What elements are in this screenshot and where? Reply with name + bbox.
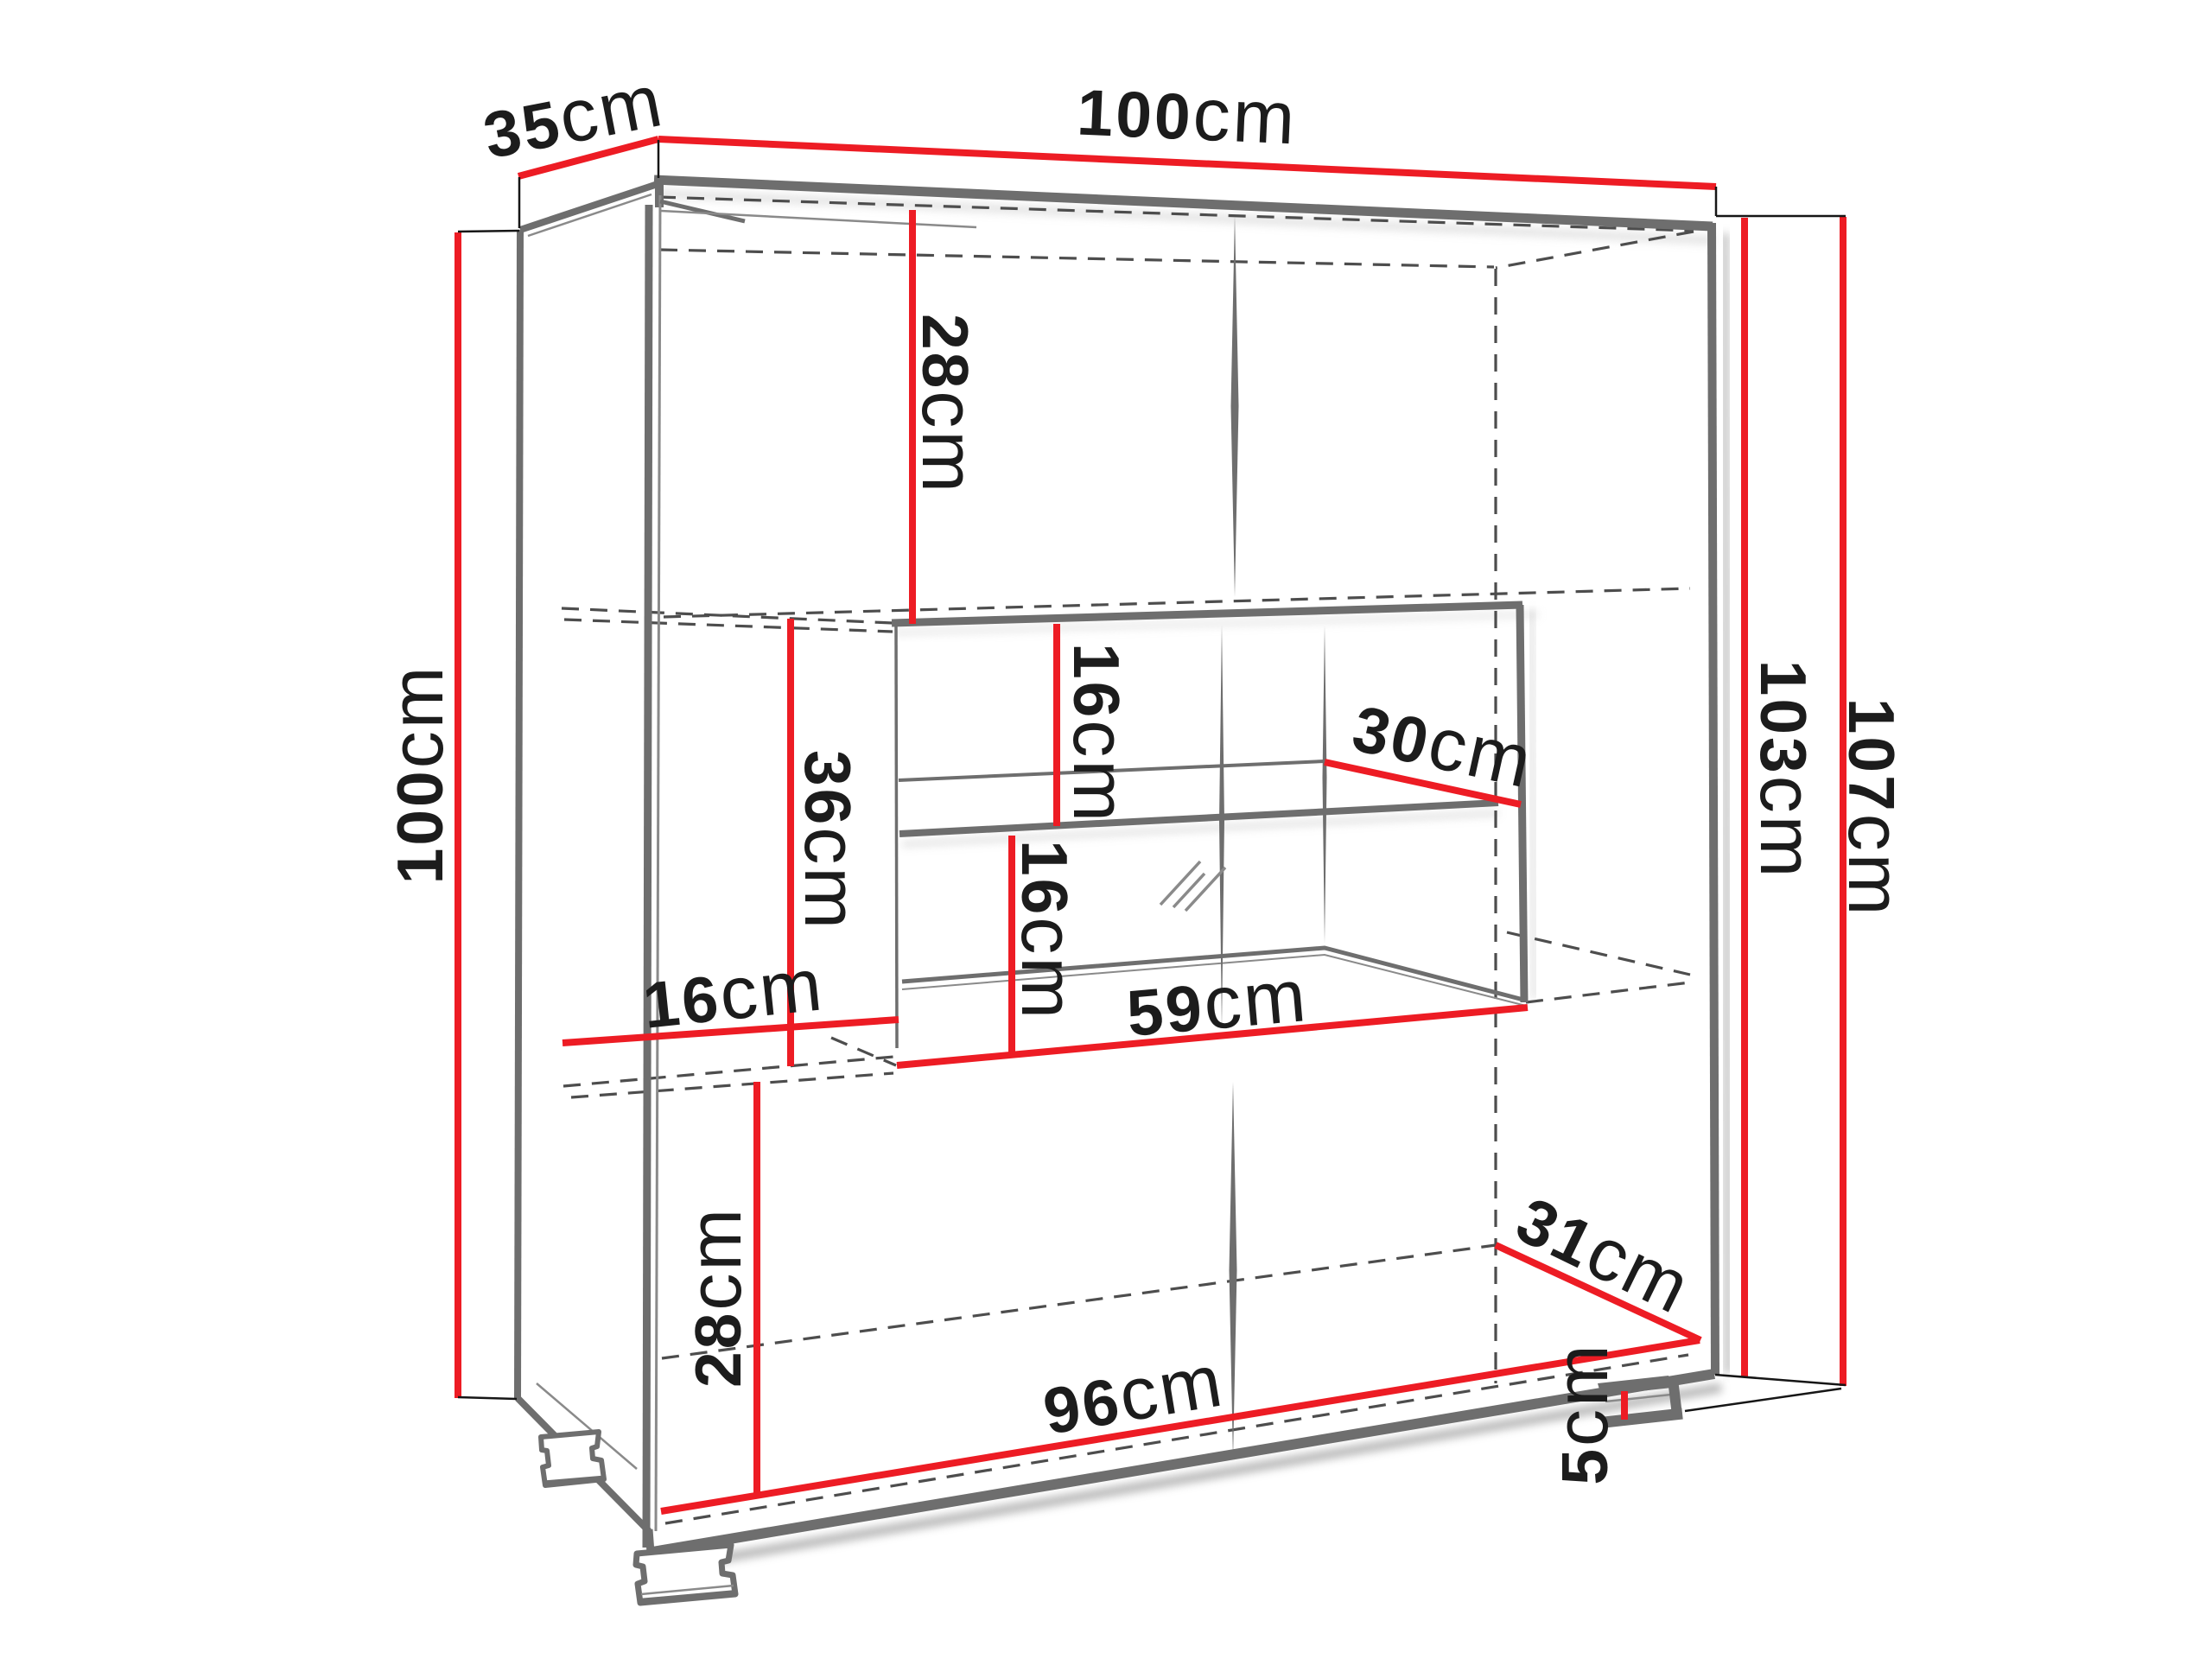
svg-text:103cm: 103cm	[1745, 660, 1827, 880]
svg-text:107cm: 107cm	[1833, 698, 1916, 918]
svg-text:100cm: 100cm	[1076, 67, 1300, 160]
svg-text:28cm: 28cm	[906, 314, 989, 495]
svg-text:28cm: 28cm	[674, 1206, 757, 1388]
svg-text:36cm: 36cm	[789, 750, 872, 931]
svg-text:100cm: 100cm	[376, 664, 459, 885]
svg-text:16cm: 16cm	[1058, 643, 1141, 824]
svg-text:16cm: 16cm	[1006, 840, 1089, 1021]
svg-text:5cm: 5cm	[1541, 1342, 1624, 1484]
